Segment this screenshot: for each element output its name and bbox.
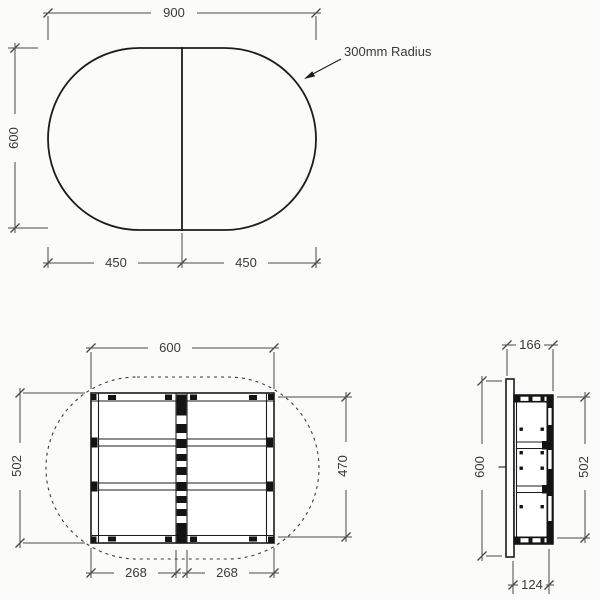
dim-label-right-half: 450 — [235, 255, 257, 270]
dim-label-left-bay: 268 — [125, 565, 147, 580]
dim-label-frame-height: 502 — [9, 455, 24, 477]
dim-label-right-bay: 268 — [216, 565, 238, 580]
dim-label-side-frame-depth: 124 — [521, 577, 543, 592]
dim-frame-width: 600 — [86, 340, 279, 389]
dim-label-side-height: 600 — [472, 456, 487, 478]
dim-label-frame-width: 600 — [159, 340, 181, 355]
tabletop-edge-section — [506, 379, 514, 557]
dim-frame-bays: 268 268 — [86, 548, 279, 580]
dim-side-frame-depth: 124 — [508, 549, 554, 594]
dim-tabletop-halves: 450 450 — [43, 233, 321, 270]
side-frame-right-batten — [547, 395, 554, 544]
side-view: 166 600 502 — [472, 337, 591, 594]
frame-plan-view: 600 502 470 — [9, 340, 352, 580]
dim-tabletop-height: 600 — [6, 43, 48, 233]
technical-drawing: 900 600 450 450 — [0, 0, 600, 600]
dim-tabletop-width: 900 — [43, 5, 321, 40]
dim-frame-height: 502 — [9, 388, 85, 548]
top-view: 900 600 450 450 — [6, 5, 432, 270]
dim-side-height: 600 — [472, 376, 502, 561]
dim-label-tabletop-width: 900 — [163, 5, 185, 20]
dim-label-side-frame-height: 502 — [576, 456, 591, 478]
dim-label-tabletop-height: 600 — [6, 127, 21, 149]
radius-leader-arrowhead — [304, 71, 315, 79]
dim-label-side-depth: 166 — [519, 337, 541, 352]
radius-leader-line — [309, 59, 341, 76]
radius-note-label: 300mm Radius — [344, 44, 432, 59]
radius-callout: 300mm Radius — [304, 44, 432, 79]
dim-label-frame-inner-height: 470 — [335, 455, 350, 477]
drawing-sheet: 900 600 450 450 — [0, 0, 600, 600]
dim-frame-inner-height: 470 — [278, 392, 352, 542]
dim-label-left-half: 450 — [105, 255, 127, 270]
dim-side-frame-height: 502 — [557, 392, 591, 543]
